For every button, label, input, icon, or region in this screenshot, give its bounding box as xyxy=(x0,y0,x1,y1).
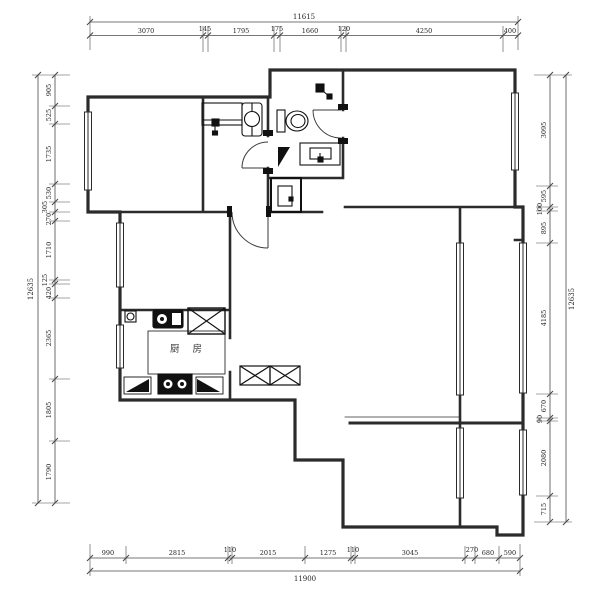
window-balcony-outer xyxy=(520,243,527,393)
window-right-top-room xyxy=(512,93,519,170)
toilet xyxy=(277,110,308,132)
dim-left-seg-3: 530 xyxy=(45,187,53,199)
window-kitchen xyxy=(117,325,124,368)
corner-cabinet-left xyxy=(124,377,151,394)
dim-left-seg-5: 270 xyxy=(45,213,53,225)
dim-left-seg-4: 305 xyxy=(41,201,49,213)
dim-left-seg-2: 1735 xyxy=(45,146,53,163)
dim-left-seg-8: 420 xyxy=(45,287,53,299)
dim-top-seg-6: 4250 xyxy=(416,27,433,35)
water-heater xyxy=(242,103,262,136)
faucet-icon xyxy=(212,119,219,126)
dim-left-seg-1: 525 xyxy=(45,109,53,121)
vanity-counter-2 xyxy=(300,143,340,165)
dim-left-seg-10: 1805 xyxy=(45,402,53,419)
dim-bottom-total: 11900 xyxy=(294,575,316,583)
dim-top-seg-3: 175 xyxy=(271,25,283,33)
dim-left-seg-0: 905 xyxy=(45,84,53,96)
dim-bottom-seg-2: 110 xyxy=(224,546,236,554)
dim-top-seg-7: 400 xyxy=(504,27,516,35)
stove xyxy=(158,374,192,394)
dim-right-seg-8: 715 xyxy=(540,503,548,515)
windows xyxy=(85,93,527,498)
corner-cabinet-right xyxy=(196,377,223,394)
door-leaf-wedge xyxy=(278,147,290,167)
window-balcony-inner xyxy=(457,243,464,395)
dim-bottom-seg-3: 2015 xyxy=(260,549,277,557)
dim-right-seg-3: 895 xyxy=(540,222,548,234)
fixtures xyxy=(124,84,340,394)
dim-bottom-seg-0: 990 xyxy=(102,549,114,557)
door-hall xyxy=(232,212,268,248)
pipe-shaft xyxy=(271,178,301,212)
floor-plan-canvas: 11615 3070 145 1795 175 1660 120 4250 40… xyxy=(0,0,600,600)
gas-meter xyxy=(125,311,136,322)
dim-left-total: 12635 xyxy=(27,278,35,300)
dim-bottom-seg-8: 680 xyxy=(482,549,494,557)
dim-bottom-seg-4: 1275 xyxy=(320,549,337,557)
vanity-counter xyxy=(202,103,242,135)
dim-right-seg-0: 3095 xyxy=(540,122,548,139)
dimension-lines xyxy=(32,16,572,576)
dim-left-seg-6: 1710 xyxy=(45,242,53,259)
dim-left-seg-9: 2365 xyxy=(45,330,53,347)
dim-top-seg-4: 1660 xyxy=(302,27,319,35)
dim-top-seg-1: 145 xyxy=(199,25,211,33)
door-bathroom xyxy=(242,142,268,168)
flue-shaft xyxy=(188,308,225,334)
dim-left-seg-7: 125 xyxy=(41,274,49,286)
dim-right-seg-6: 90 xyxy=(536,415,544,423)
dim-top-seg-2: 1795 xyxy=(233,27,250,35)
dim-bottom-seg-9: 590 xyxy=(504,549,516,557)
hatched-box-row xyxy=(240,366,300,385)
faucet-icon xyxy=(318,157,323,162)
dim-top-total: 11615 xyxy=(293,13,315,21)
kitchen-sink xyxy=(153,310,183,328)
valve-icon xyxy=(316,84,332,99)
dim-bottom-seg-7: 270 xyxy=(466,546,478,554)
dim-right-seg-2: 100 xyxy=(536,203,544,215)
dim-bottom-seg-1: 2815 xyxy=(169,549,186,557)
dim-right-total: 12635 xyxy=(568,288,576,310)
window-left-top xyxy=(85,112,92,190)
dim-right-seg-7: 2080 xyxy=(540,450,548,467)
dim-left-seg-11: 1790 xyxy=(45,464,53,481)
dim-right-seg-5: 670 xyxy=(540,400,548,412)
dim-top-seg-5: 120 xyxy=(338,25,350,33)
dim-top-seg-0: 3070 xyxy=(138,27,155,35)
window-left-middle xyxy=(117,223,124,287)
floor-plan-page: 11615 3070 145 1795 175 1660 120 4250 40… xyxy=(0,0,600,600)
dim-bottom-seg-6: 3045 xyxy=(402,549,419,557)
window-bedroom-outer xyxy=(520,430,527,495)
dim-bottom-seg-5: 110 xyxy=(347,546,359,554)
window-bedroom-inner xyxy=(457,428,464,498)
dim-right-seg-1: 595 xyxy=(540,190,548,202)
door-toilet xyxy=(313,110,341,138)
dim-right-seg-4: 4185 xyxy=(540,310,548,327)
room-label-kitchen: 厨 房 xyxy=(170,343,207,355)
